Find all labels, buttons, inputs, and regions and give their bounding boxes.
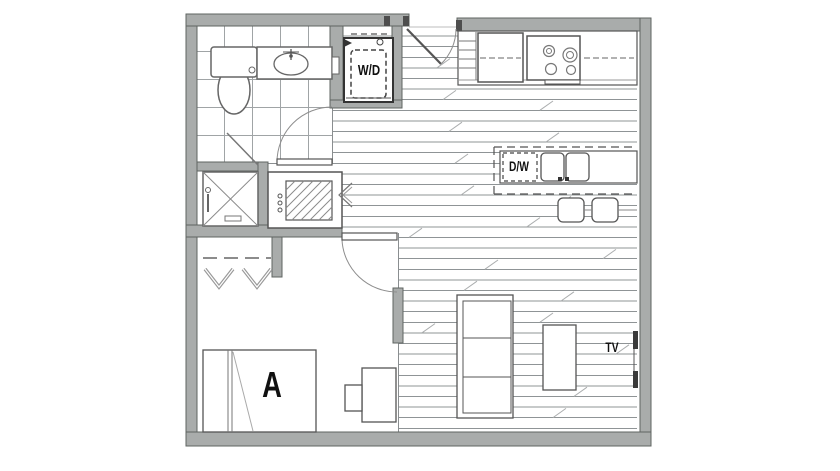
faucet-spout-icon [289, 54, 293, 58]
shower-drain-icon [225, 216, 241, 221]
shower-door-leaf [227, 133, 258, 165]
vanity-side-tab [332, 57, 339, 74]
washer-knob-icon [377, 39, 383, 45]
wall-right [640, 18, 651, 446]
wall-end-cap [384, 16, 390, 26]
bathroom-door-swing-arc [277, 107, 332, 162]
tv-label: TV [599, 341, 625, 355]
sink-basin-left [541, 153, 564, 181]
closet-hanger-2 [243, 269, 271, 287]
wall-bedroom-door-stub [393, 288, 403, 343]
bedroom-door-swing-arc [342, 240, 397, 292]
unit-a-label: A [255, 367, 288, 403]
living-furniture [457, 295, 638, 418]
closet-hanger-1 [205, 269, 233, 287]
entry-door-swing-arc [441, 29, 456, 64]
heater-knob-3 [278, 208, 282, 212]
kitchen-counter [458, 31, 637, 85]
bar-stool-2 [592, 198, 618, 222]
floor-plank-ticks [409, 37, 629, 417]
floorplan-linework [0, 0, 840, 471]
tv-mount-top [633, 331, 638, 349]
armchair-seat [362, 368, 396, 422]
island-faucet-2 [565, 177, 569, 181]
shower-head-icon [206, 188, 211, 193]
island-faucet-1 [558, 177, 562, 181]
sink-basin-right [566, 153, 589, 181]
entry-jamb-right [456, 20, 462, 31]
oven-handle-icon [545, 80, 580, 84]
washer-dryer-label: W/D [352, 63, 387, 78]
sofa-icon [457, 295, 513, 418]
tv-mount-bottom [633, 371, 638, 388]
floor-plan: W/D D/W A TV [0, 0, 840, 471]
wall-top-left [186, 14, 409, 26]
toilet-flush-icon [249, 67, 255, 73]
wall-top-right [457, 18, 651, 31]
bedroom-door-leaf [342, 233, 397, 240]
bedroom-furniture [203, 258, 396, 432]
entry-jamb-left [403, 16, 409, 26]
wall-closet-stub [272, 237, 282, 277]
bar-stool-1 [558, 198, 584, 222]
wall-bottom [186, 432, 651, 446]
heater-knob-2 [278, 201, 282, 205]
wall-shower-right [258, 162, 268, 233]
entry-door-leaf [407, 29, 441, 64]
heater-knob-1 [278, 194, 282, 198]
armchair-ottoman [345, 385, 362, 411]
bathroom-door-leaf [277, 159, 332, 165]
water-heater-closet [268, 172, 352, 228]
dishwasher-label: D/W [504, 160, 534, 174]
coffee-table-icon [543, 325, 576, 390]
